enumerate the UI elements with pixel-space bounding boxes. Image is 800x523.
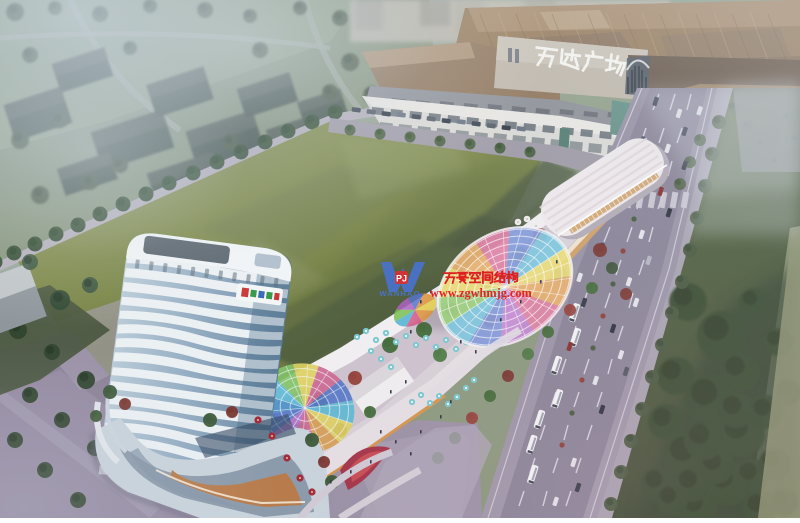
svg-text:PJ: PJ xyxy=(396,274,407,284)
svg-text:WANHAO: WANHAO xyxy=(379,289,420,298)
svg-text:www.zgwhmjg.com: www.zgwhmjg.com xyxy=(430,286,533,300)
